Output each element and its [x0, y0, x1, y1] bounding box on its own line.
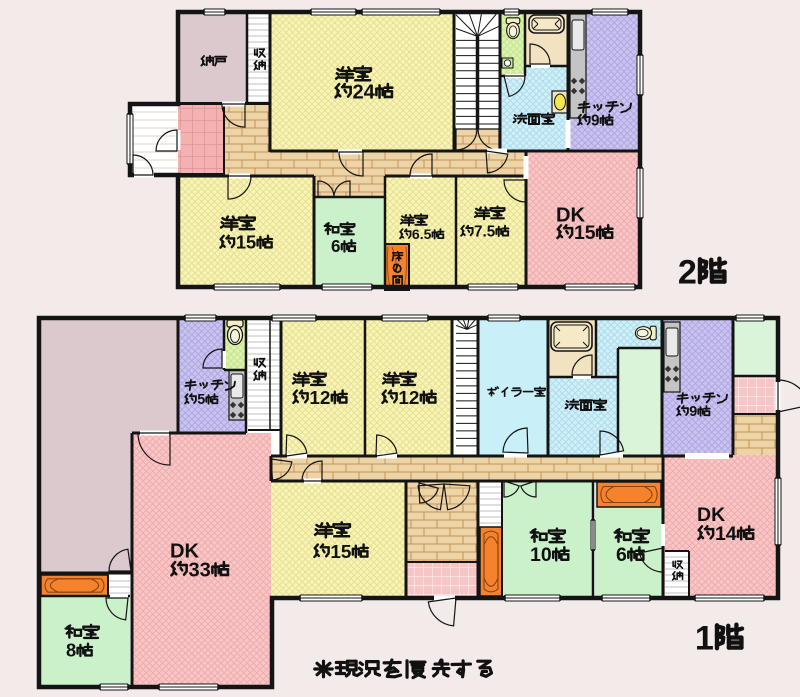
svg-text:9: 9 — [689, 404, 697, 420]
svg-text:5: 5 — [197, 392, 205, 408]
svg-text:9: 9 — [591, 113, 599, 130]
svg-text:1: 1 — [695, 619, 714, 657]
svg-text:24: 24 — [353, 81, 376, 103]
svg-text:6.5: 6.5 — [412, 226, 432, 242]
svg-text:15: 15 — [574, 222, 596, 244]
svg-text:15: 15 — [330, 542, 351, 563]
svg-text:6: 6 — [331, 237, 341, 256]
svg-text:7.5: 7.5 — [474, 224, 496, 241]
svg-text:2: 2 — [678, 253, 697, 291]
svg-text:8: 8 — [66, 640, 76, 661]
svg-text:12: 12 — [398, 388, 419, 409]
svg-text:33: 33 — [189, 559, 211, 581]
svg-text:14: 14 — [715, 523, 737, 545]
svg-text:10: 10 — [530, 544, 552, 566]
svg-text:12: 12 — [309, 388, 330, 409]
svg-text:15: 15 — [236, 232, 256, 253]
svg-text:6: 6 — [616, 544, 627, 566]
